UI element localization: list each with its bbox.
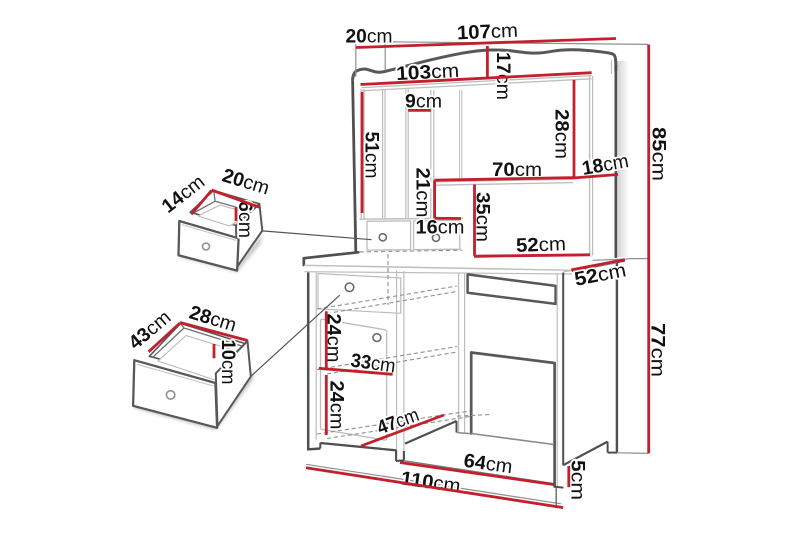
svg-text:20cm: 20cm: [346, 26, 393, 48]
svg-text:24cm: 24cm: [325, 381, 347, 430]
svg-text:21cm: 21cm: [411, 168, 433, 218]
svg-text:51cm: 51cm: [360, 132, 382, 179]
svg-text:10cm: 10cm: [217, 340, 239, 385]
svg-text:85cm: 85cm: [647, 127, 669, 181]
svg-text:28cm: 28cm: [550, 109, 572, 159]
svg-text:16cm: 16cm: [416, 217, 465, 239]
svg-text:52cm: 52cm: [516, 233, 567, 257]
svg-text:107cm: 107cm: [457, 20, 519, 45]
